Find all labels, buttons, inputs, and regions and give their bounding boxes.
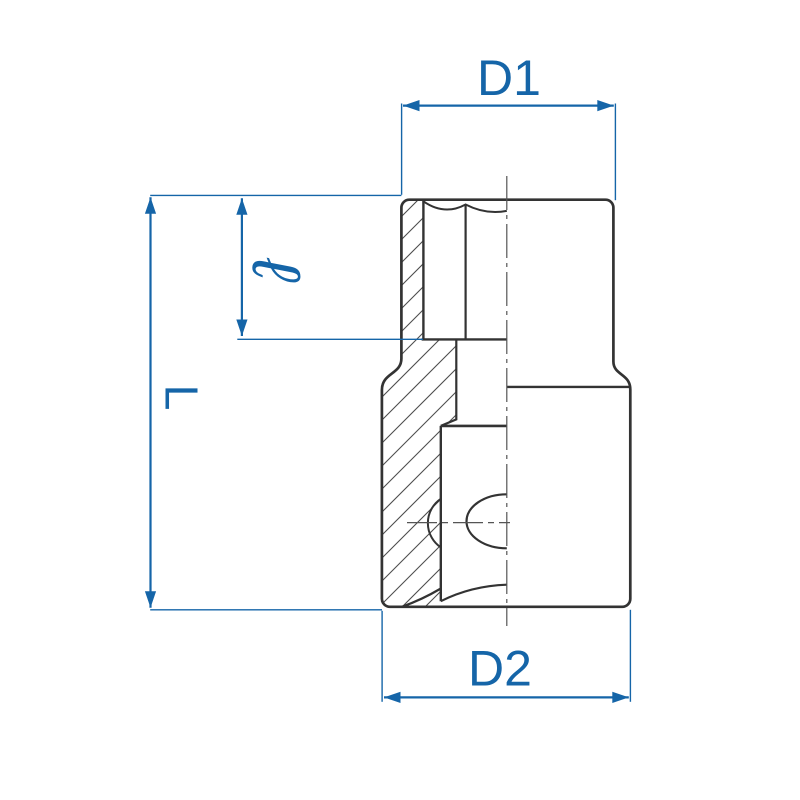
svg-text:D2: D2 (468, 641, 532, 697)
svg-text:D1: D1 (477, 50, 541, 106)
svg-text:L: L (156, 385, 208, 411)
svg-text:ℓ: ℓ (238, 257, 314, 283)
